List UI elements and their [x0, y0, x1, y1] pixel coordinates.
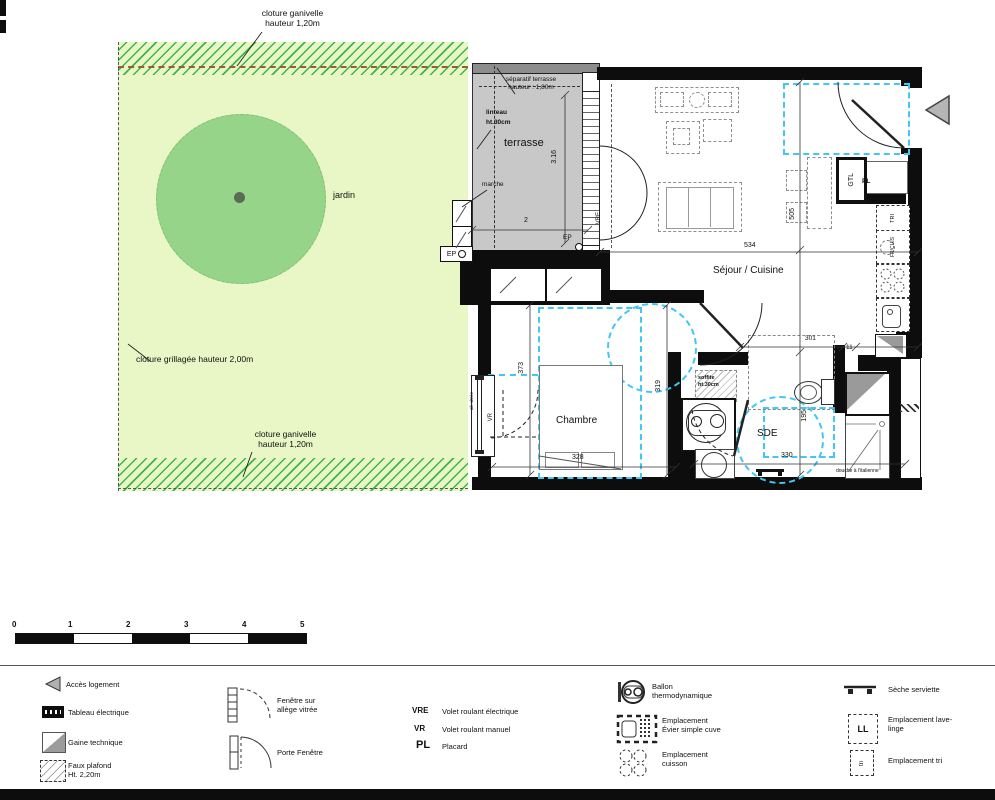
- evier-icon: [616, 714, 658, 744]
- terrace-label: terrasse: [504, 137, 544, 150]
- scale-tick: 0: [12, 620, 16, 630]
- room-label-chambre: Chambre: [556, 415, 597, 427]
- tri-abbr: tri: [859, 761, 865, 766]
- scale-tick: 3: [184, 620, 188, 630]
- room-label-sde: SDE: [757, 428, 778, 440]
- scale-segment: [132, 634, 190, 643]
- scale-segment: [190, 634, 248, 643]
- scale-tick: 2: [126, 620, 130, 630]
- porte-fenetre-icon: [228, 734, 272, 772]
- linteau-ht-label: ht.30cm: [486, 119, 511, 127]
- faux-plafond-label: Faux plafond Ht. 2,20m: [68, 761, 111, 780]
- tri-icon: tri: [850, 750, 874, 776]
- evier-label: Emplacement Évier simple cuve: [662, 716, 721, 735]
- pl-abbr: PL: [416, 739, 430, 752]
- lave-linge-icon: LL: [848, 714, 878, 744]
- dim-terrace-l: 3.16: [551, 150, 559, 164]
- dim-chambre-d: 319: [655, 380, 663, 392]
- vre-label: VRE: [596, 212, 603, 224]
- vr-abbr: VR: [414, 724, 425, 734]
- floor-plan-sheet: cloture ganivelle hauteur 1,20m jardin c…: [0, 0, 995, 800]
- soffit-label: soffite ht.30cm: [698, 375, 719, 388]
- room-label-sejour: Séjour / Cuisine: [713, 265, 784, 277]
- douche-label: douche à l'italienne: [836, 468, 879, 474]
- tableau-electrique-label: Tableau électrique: [68, 708, 129, 717]
- tableau-detail: [45, 710, 61, 714]
- porte-fenetre-label: Porte Fenêtre: [277, 748, 323, 757]
- scale-tick: 4: [242, 620, 246, 630]
- vr-desc: Volet roulant manuel: [442, 725, 510, 734]
- lave-linge-label: Emplacement lave- linge: [888, 715, 952, 734]
- cuisson-icon: [617, 748, 649, 778]
- dim-sejour-l: 505: [789, 208, 797, 220]
- fenetre-allege-icon: [226, 686, 274, 726]
- dim-cloison: 11: [846, 344, 853, 352]
- marche-label: marche: [482, 181, 504, 189]
- gaine-technique-icon: [42, 732, 66, 753]
- detail-lines: [456, 206, 885, 472]
- tableau-electrique-icon: [42, 706, 64, 718]
- scale-segment: [74, 634, 132, 643]
- dim-sde-l: 195: [801, 410, 809, 422]
- dim-sde-w: 330: [781, 452, 793, 460]
- linteau-label: linteau: [486, 109, 507, 117]
- acces-logement-label: Accès logement: [66, 680, 119, 689]
- legend-separator: [0, 665, 995, 666]
- ll-abbr: LL: [858, 724, 869, 734]
- dim-chambre-w: 328: [572, 454, 584, 462]
- dim-sejour-w: 534: [744, 242, 756, 250]
- door-swings: [490, 82, 904, 456]
- faux-plafond-icon: [40, 760, 66, 782]
- scale-bar-segments: [15, 633, 307, 644]
- vre-desc: Volet roulant électrique: [442, 707, 518, 716]
- tri-legend-label: Emplacement tri: [888, 756, 942, 765]
- leader-lines: [128, 32, 515, 477]
- dim-chambre-l: 373: [518, 362, 526, 374]
- seche-serviette-label: Sèche serviette: [888, 685, 940, 694]
- scale-tick: 1: [68, 620, 72, 630]
- pl-desc: Placard: [442, 742, 467, 751]
- scale-tick: 5: [300, 620, 304, 630]
- separatif-label: séparatif terrasse hauteur : 1,80m: [496, 76, 566, 92]
- fenetre-allege-label: Fenêtre sur allège vitrée: [277, 696, 317, 715]
- seche-serviette-icon: [843, 684, 877, 696]
- cuisson-label: Emplacement cuisson: [662, 750, 708, 769]
- ballon-icon: [616, 678, 648, 706]
- acces-logement-icon: [44, 675, 62, 693]
- scale-bar: 0 1 2 3 4 5: [12, 620, 312, 648]
- dim-entree: 301: [805, 335, 816, 343]
- scale-segment: [16, 634, 74, 643]
- dim-terrace-w: 2: [524, 217, 528, 225]
- vre-abbr: VRE: [412, 706, 428, 716]
- ballon-label: Ballon thermodynamique: [652, 682, 712, 701]
- sheet-bottom-bar: [0, 789, 995, 800]
- scale-segment: [248, 634, 306, 643]
- gaine-technique-label: Gaine technique: [68, 738, 123, 747]
